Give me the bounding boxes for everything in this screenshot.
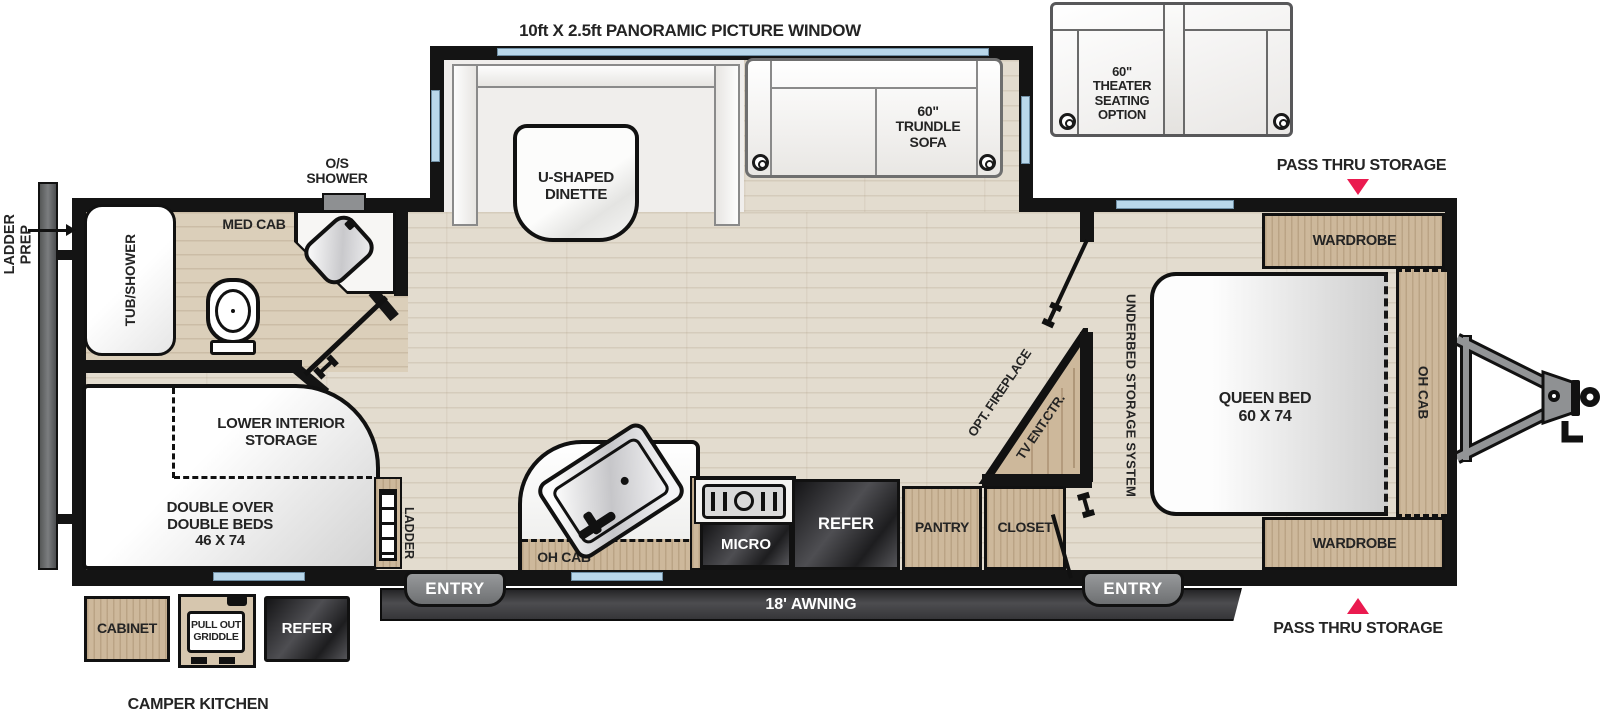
microwave: MICRO	[700, 522, 792, 568]
dinette-bench-right	[714, 64, 740, 226]
wardrobe-bottom-label: WARDROBE	[1272, 537, 1437, 553]
sofa-back	[770, 61, 978, 89]
floorplan: 10ft X 2.5ft PANORAMIC PICTURE WINDOW U-…	[0, 0, 1600, 728]
ladder-prep-bracket	[56, 514, 74, 524]
hitch-icon	[1457, 323, 1600, 473]
ladder-prep-bracket	[56, 250, 74, 260]
pantry: PANTRY	[902, 486, 982, 570]
tub-shower: TUB/SHOWER	[84, 204, 176, 356]
camper-griddle: PULL OUT GRIDDLE	[178, 594, 256, 668]
queen-bed-dashed-edge	[1384, 274, 1388, 514]
bathroom-wall-stub	[394, 212, 408, 296]
pull-out-griddle-label: PULL OUT GRIDDLE	[191, 620, 241, 643]
oh-cab-bedroom: OH CAB	[1396, 269, 1447, 517]
pass-thru-storage-bottom-label: PASS THRU STORAGE	[1250, 620, 1466, 638]
trundle-sofa-label: 60" TRUNDLE SOFA	[878, 104, 978, 150]
entry-badge-right: ENTRY	[1082, 571, 1184, 607]
oh-cab-bedroom-label: OH CAB	[1416, 366, 1431, 419]
ladder-prep-arrow-icon	[66, 224, 76, 236]
cupholder-icon	[1273, 113, 1290, 130]
underbed-storage-label-wrap: UNDERBED STORAGE SYSTEM	[1118, 270, 1144, 520]
sofa-seat-seam	[875, 87, 877, 175]
slideout-right-window	[1021, 96, 1030, 164]
outside-shower-icon	[322, 193, 366, 212]
ladder-icon	[379, 489, 397, 561]
ladder-prep-bar	[38, 182, 58, 570]
panoramic-window-label: 10ft X 2.5ft PANORAMIC PICTURE WINDOW	[420, 22, 960, 41]
wardrobe-top-label: WARDROBE	[1272, 234, 1437, 250]
camper-refer-label: REFER	[282, 621, 333, 638]
refer-label: REFER	[818, 515, 874, 533]
queen-bed-label: QUEEN BED 60 X 74	[1160, 390, 1370, 425]
ladder-prep-arrow-icon	[28, 229, 70, 232]
pass-thru-arrow-icon	[1347, 598, 1369, 614]
bunk-ladder-label: LADDER	[402, 507, 416, 559]
tub-shower-label: TUB/SHOWER	[123, 234, 138, 326]
camper-kitchen-label: CAMPER KITCHEN	[106, 696, 290, 714]
micro-label: MICRO	[721, 537, 771, 554]
ladder-prep-label: LADDER PREP	[2, 214, 35, 274]
cupholder-icon	[979, 154, 996, 171]
camper-refer: REFER	[264, 596, 350, 662]
dinette-bench-left	[452, 64, 478, 226]
camper-cabinet: CABINET	[84, 596, 170, 662]
camper-cabinet-label: CABINET	[97, 621, 157, 636]
bunk-ladder-label-wrap: LADDER	[400, 490, 418, 576]
toilet-icon	[202, 276, 264, 362]
entry-left-label: ENTRY	[425, 580, 485, 599]
bedroom-door-jamb	[1080, 212, 1094, 242]
dinette-bench-back	[452, 64, 740, 88]
pass-thru-arrow-icon	[1347, 179, 1369, 195]
cooktop-icon	[702, 484, 786, 519]
kitchen-window	[571, 572, 663, 581]
entry-right-label: ENTRY	[1103, 580, 1163, 599]
ladder-prep-label-wrap: LADDER PREP	[0, 178, 38, 310]
dinette-label: U-SHAPED DINETTE	[514, 170, 638, 203]
refrigerator: REFER	[792, 479, 900, 570]
bedroom-window	[1116, 200, 1234, 209]
closet-label: CLOSET	[998, 520, 1053, 535]
os-shower-label: O/S SHOWER	[297, 156, 377, 187]
slideout-left-window	[431, 90, 440, 162]
pantry-label: PANTRY	[915, 520, 969, 535]
double-beds-label: DOUBLE OVER DOUBLE BEDS 46 X 74	[148, 500, 292, 550]
tv-corner-wall-vertical	[1080, 332, 1093, 482]
cupholder-icon	[752, 154, 769, 171]
lower-storage-dashed-v	[172, 388, 175, 478]
awning-label: 18' AWNING	[765, 596, 856, 614]
med-cab-label: MED CAB	[208, 217, 300, 232]
theater-seating-option: 60" THEATER SEATING OPTION	[1050, 2, 1293, 137]
bunk-window	[213, 572, 305, 581]
entry-badge-left: ENTRY	[404, 571, 506, 607]
bathroom-wall-bottom	[72, 360, 302, 373]
underbed-storage-label: UNDERBED STORAGE SYSTEM	[1124, 294, 1139, 497]
theater-armrest-right	[1266, 29, 1268, 134]
lower-storage-dashed-h	[174, 476, 372, 479]
theater-seating-label: 60" THEATER SEATING OPTION	[1061, 65, 1183, 122]
lower-interior-storage-label: LOWER INTERIOR STORAGE	[196, 416, 366, 449]
pass-thru-storage-top-label: PASS THRU STORAGE	[1254, 157, 1469, 175]
slideout-top-window	[497, 48, 989, 56]
